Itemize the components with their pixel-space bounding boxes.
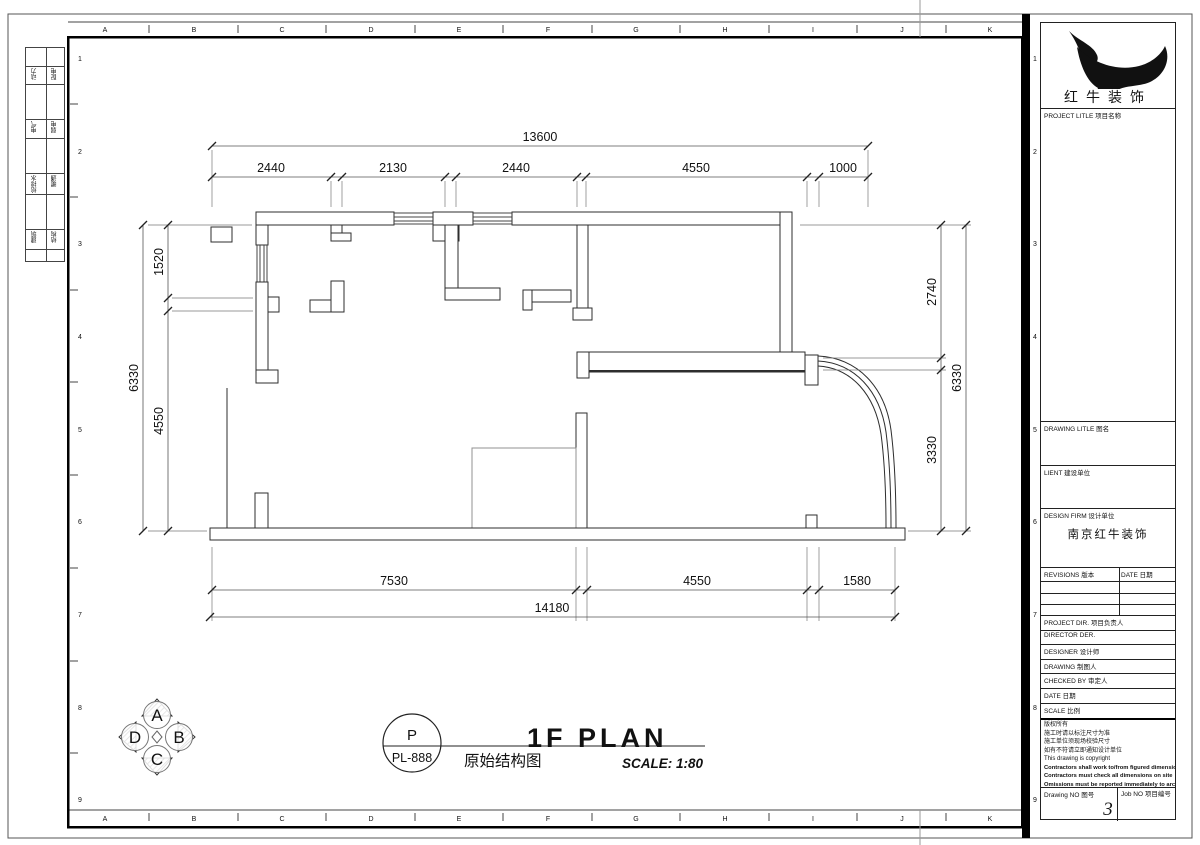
discipline-label: 电气 bbox=[32, 121, 38, 133]
grid-number: 2 bbox=[78, 149, 82, 156]
bull-logo-icon bbox=[1041, 27, 1177, 89]
floor-plan bbox=[210, 212, 905, 540]
window bbox=[257, 245, 267, 282]
zone-label: C bbox=[151, 750, 163, 769]
wall-segment bbox=[780, 212, 792, 358]
table-row bbox=[26, 84, 64, 119]
logo-cell: 红牛装饰 bbox=[1041, 23, 1175, 108]
copyright-line: 施工时请以标注尺寸为准 bbox=[1044, 730, 1172, 739]
grid-letter: F bbox=[546, 816, 550, 823]
revisions-label: REVISIONS 版本 bbox=[1044, 572, 1094, 579]
dim-label: 2130 bbox=[379, 161, 407, 175]
grid-letter: H bbox=[722, 27, 727, 34]
grid-letter: A bbox=[103, 816, 108, 823]
grid-letter: E bbox=[457, 27, 462, 34]
orientation-symbol: A B C D bbox=[119, 699, 195, 775]
wall-segment bbox=[577, 352, 589, 378]
wall-pier bbox=[805, 355, 818, 385]
grid-letter: A bbox=[103, 27, 108, 34]
table-row bbox=[26, 249, 64, 263]
grid-letter: K bbox=[988, 27, 993, 34]
date-row: DATE 日期 bbox=[1041, 688, 1175, 703]
grid-number: 9 bbox=[1033, 797, 1037, 804]
director-row: DIRECTOR DER. bbox=[1041, 630, 1175, 644]
grid-letter: F bbox=[546, 27, 550, 34]
discipline-label: 弱电 bbox=[52, 121, 58, 133]
drawing-sheet: A B C D E F G H I J K A B C D E F G H I … bbox=[0, 0, 1200, 845]
revisions-header: REVISIONS 版本 DATE 日期 bbox=[1041, 567, 1175, 581]
dim-label: 7530 bbox=[380, 574, 408, 588]
grid-number: 1 bbox=[1033, 56, 1037, 63]
title-block: 红牛装饰 PROJECT LITLE 项目名称 DRAWING LITLE 图名… bbox=[1040, 22, 1176, 820]
wall-segment bbox=[577, 225, 588, 320]
grid-letter: B bbox=[192, 816, 197, 823]
checked-by-row: CHECKED BY 审定人 bbox=[1041, 673, 1175, 688]
grid-number: 2 bbox=[1033, 149, 1037, 156]
wall-segment bbox=[331, 281, 344, 312]
grid-number: 5 bbox=[1033, 427, 1037, 434]
dim-label: 6330 bbox=[950, 364, 964, 392]
copyright-line: 施工单位须现场校验尺寸 bbox=[1044, 738, 1172, 747]
table-row: 动力 配电 bbox=[26, 66, 64, 84]
revisions-date-label: DATE 日期 bbox=[1121, 569, 1153, 579]
grid-number: 8 bbox=[78, 705, 82, 712]
grid-number: 3 bbox=[78, 241, 82, 248]
copyright-line: Contractors shall work to/from figured d… bbox=[1044, 764, 1172, 773]
column bbox=[211, 227, 232, 242]
grid-letter: D bbox=[368, 27, 373, 34]
grid-number: 6 bbox=[1033, 519, 1037, 526]
sheet-frame bbox=[8, 0, 1192, 845]
grid-number: 7 bbox=[78, 612, 82, 619]
grid-letter: C bbox=[279, 27, 284, 34]
grid-letters-top: A B C D E F G H I J K bbox=[103, 25, 993, 34]
table-row: 给排水 暖通 bbox=[26, 173, 64, 194]
dim-label: 2740 bbox=[925, 278, 939, 306]
title-tag-letter: P bbox=[407, 727, 417, 744]
dim-label: 1000 bbox=[829, 161, 857, 175]
project-dir-row: PROJECT DIR. 项目负责人 bbox=[1041, 615, 1175, 630]
revision-row bbox=[1041, 593, 1175, 604]
project-title-cell: PROJECT LITLE 项目名称 bbox=[1041, 108, 1175, 421]
zone-label: D bbox=[129, 728, 141, 747]
revision-row bbox=[1041, 581, 1175, 593]
wall-segment bbox=[523, 290, 532, 310]
grid-letter: H bbox=[722, 816, 727, 823]
drawing-title-cell: DRAWING LITLE 图名 bbox=[1041, 421, 1175, 465]
bay-window bbox=[818, 356, 896, 528]
title-tag-number: PL-888 bbox=[392, 751, 432, 765]
grid-letter: K bbox=[988, 816, 993, 823]
sheet-svg: A B C D E F G H I J K A B C D E F G H I … bbox=[0, 0, 1200, 845]
grid-letter: E bbox=[457, 816, 462, 823]
grid-number: 4 bbox=[1033, 334, 1037, 341]
wall-segment bbox=[331, 233, 351, 241]
discipline-label: 配电 bbox=[52, 68, 58, 80]
dim-label: 13600 bbox=[523, 130, 558, 144]
shaft-outline bbox=[472, 448, 576, 528]
copyright-line: 版权所有 bbox=[1044, 721, 1172, 730]
titleblock-divider-bar bbox=[1022, 14, 1030, 838]
drawing-no-label: Drawing NO 图号 bbox=[1044, 792, 1094, 799]
drawing-title: P PL-888 原始结构图 1F PLAN SCALE: 1:80 bbox=[383, 714, 705, 772]
dim-label: 14180 bbox=[535, 601, 570, 615]
company-name: 红牛装饰 bbox=[1041, 87, 1175, 107]
dimensions: 13600 2440 2130 2440 4550 1000 7530 4550… bbox=[127, 130, 971, 621]
discipline-label: 动力 bbox=[32, 68, 38, 80]
dim-label: 4550 bbox=[682, 161, 710, 175]
grid-letter: I bbox=[812, 816, 814, 823]
table-row bbox=[26, 138, 64, 173]
discipline-label: 暖通 bbox=[52, 175, 58, 187]
job-no-label: Job NO 项目编号 bbox=[1121, 791, 1171, 798]
dim-label: 2440 bbox=[502, 161, 530, 175]
grid-letters-bottom: A B C D E F G H I J K bbox=[103, 813, 993, 823]
revisions-divider bbox=[1119, 567, 1120, 615]
grid-number: 8 bbox=[1033, 705, 1037, 712]
table-row bbox=[26, 194, 64, 229]
grid-number: 3 bbox=[1033, 241, 1037, 248]
dim-label: 4550 bbox=[152, 407, 166, 435]
discipline-label: 给排水 bbox=[32, 175, 38, 193]
drawing-title-cn: 原始结构图 bbox=[464, 752, 542, 770]
grid-letter: B bbox=[192, 27, 197, 34]
grid-number: 6 bbox=[78, 519, 82, 526]
discipline-table: 动力 配电 电气 弱电 给排水 暖通 建筑 结构 bbox=[25, 47, 65, 262]
discipline-label: 建筑 bbox=[32, 231, 38, 243]
drawing-scale: SCALE: 1:80 bbox=[622, 756, 704, 771]
design-firm-cell: DESIGN FIRM 设计单位 南京红牛装饰 bbox=[1041, 508, 1175, 567]
designer-row: DESIGNER 设计师 bbox=[1041, 644, 1175, 659]
dim-label: 2440 bbox=[257, 161, 285, 175]
table-row: 建筑 结构 bbox=[26, 229, 64, 249]
copyright-line: Contractors must check all dimensions on… bbox=[1044, 772, 1172, 781]
table-row: 电气 弱电 bbox=[26, 119, 64, 138]
grid-number: 1 bbox=[78, 56, 82, 63]
revision-row bbox=[1041, 604, 1175, 615]
wall-segment bbox=[255, 493, 268, 528]
grid-number: 4 bbox=[78, 334, 82, 341]
dim-label: 1580 bbox=[843, 574, 871, 588]
design-firm-name: 南京红牛装饰 bbox=[1044, 520, 1172, 542]
wall-segment bbox=[512, 212, 792, 225]
wall-segment bbox=[256, 225, 268, 245]
copyright-cell: 版权所有 施工时请以标注尺寸为准 施工单位须现场校验尺寸 如有不符请立即通知设计… bbox=[1041, 718, 1175, 787]
wall-segment bbox=[576, 413, 587, 530]
drawing-title-main: 1F PLAN bbox=[527, 723, 668, 753]
wall-segment bbox=[573, 308, 592, 320]
wall-segment bbox=[268, 297, 279, 312]
wall-segment bbox=[433, 212, 473, 225]
grid-numbers-left: 1 2 3 4 5 6 7 8 9 bbox=[70, 56, 82, 804]
grid-letter: G bbox=[633, 816, 638, 823]
center-diamond-icon bbox=[152, 731, 162, 743]
grid-number: 7 bbox=[1033, 612, 1037, 619]
dim-label: 3330 bbox=[925, 436, 939, 464]
dim-label: 1520 bbox=[152, 248, 166, 276]
grid-letter: J bbox=[900, 816, 904, 823]
zone-label: B bbox=[173, 728, 184, 747]
zone-label: A bbox=[151, 706, 163, 725]
outer-border bbox=[8, 14, 1192, 838]
wall-segment bbox=[577, 352, 805, 372]
wall-segment bbox=[256, 282, 268, 377]
wall-segment bbox=[210, 528, 905, 540]
dim-label: 4550 bbox=[683, 574, 711, 588]
dim-label: 6330 bbox=[127, 364, 141, 392]
job-no-cell: Job NO 项目编号 bbox=[1117, 787, 1174, 821]
drawing-by-row: DRAWING 制图人 bbox=[1041, 659, 1175, 673]
wall-segment bbox=[256, 212, 394, 225]
client-cell: LIENT 建设单位 bbox=[1041, 465, 1175, 508]
grid-letter: C bbox=[279, 816, 284, 823]
grid-letter: G bbox=[633, 27, 638, 34]
grid-letter: J bbox=[900, 27, 904, 34]
discipline-label: 结构 bbox=[52, 231, 58, 243]
wall-segment bbox=[256, 370, 278, 383]
design-firm-label: DESIGN FIRM 设计单位 bbox=[1044, 513, 1114, 520]
copyright-line: 如有不符请立即通知设计单位 bbox=[1044, 747, 1172, 756]
grid-number: 5 bbox=[78, 427, 82, 434]
scale-row: SCALE 比例 bbox=[1041, 703, 1175, 718]
grid-letter: D bbox=[368, 816, 373, 823]
grid-number: 9 bbox=[78, 797, 82, 804]
grid-letter: I bbox=[812, 27, 814, 34]
grid-numbers-right: 1 2 3 4 5 6 7 8 9 bbox=[1033, 56, 1037, 804]
wall-segment bbox=[445, 288, 500, 300]
copyright-line: This drawing is copyright bbox=[1044, 755, 1172, 764]
drawing-frame bbox=[68, 37, 1022, 827]
